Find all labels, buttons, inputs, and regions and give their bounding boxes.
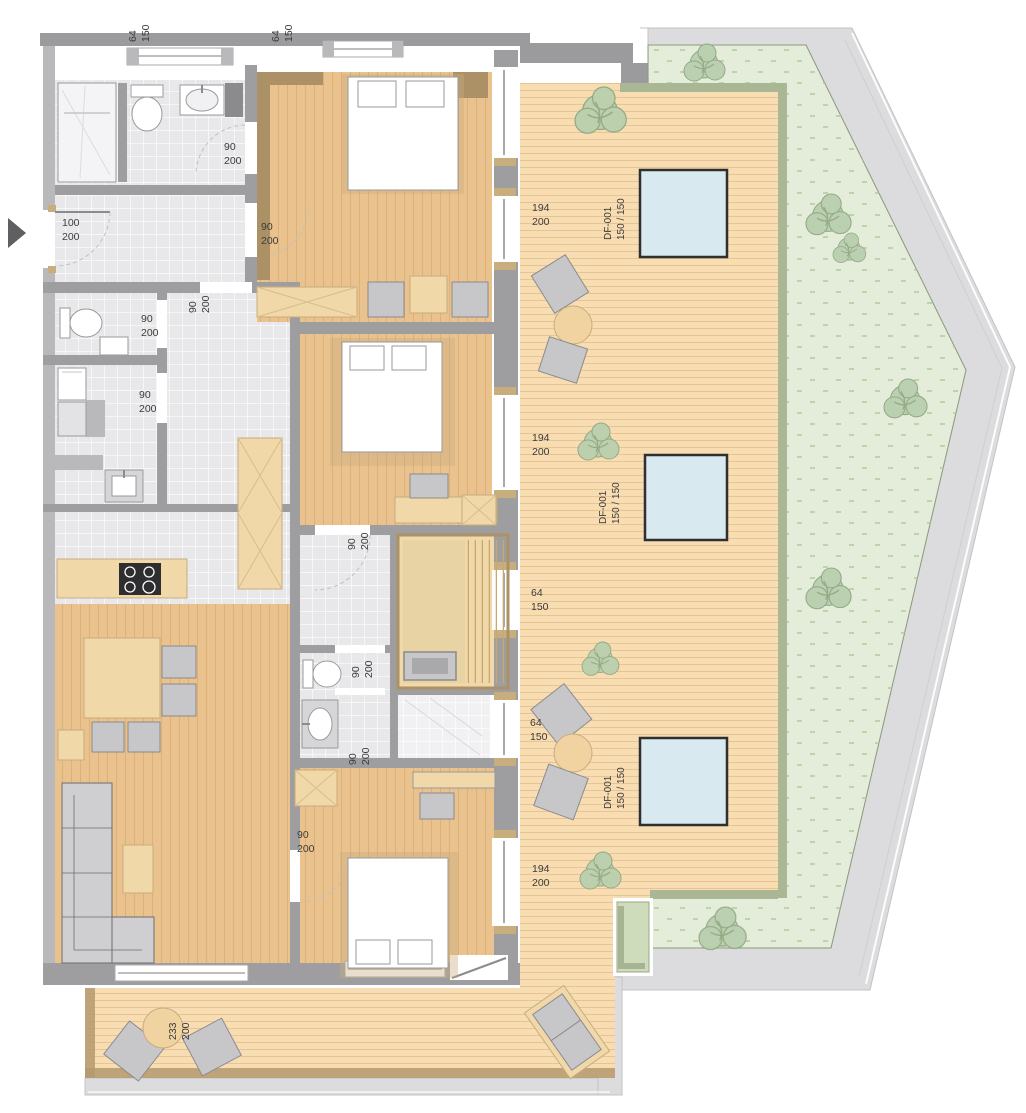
- desk: [413, 772, 495, 788]
- top-window-1: [127, 48, 233, 65]
- svg-text:200: 200: [360, 747, 372, 765]
- chair: [92, 722, 124, 752]
- wall-left: [43, 46, 55, 985]
- sauna: [398, 535, 508, 688]
- svg-text:90: 90: [261, 221, 273, 233]
- dim-top-window-2: 64150: [270, 24, 295, 42]
- floor-hall-2: [300, 535, 390, 645]
- svg-text:200: 200: [141, 327, 159, 339]
- round-table: [554, 734, 592, 772]
- stove: [119, 563, 161, 595]
- planter: [613, 898, 653, 976]
- svg-text:64: 64: [127, 30, 139, 42]
- dryer: [58, 402, 86, 436]
- sauna-slats: [462, 540, 504, 683]
- washer: [58, 368, 86, 400]
- wall-right: [494, 50, 518, 963]
- wardrobe: [257, 287, 357, 317]
- skylight-2: [645, 455, 727, 540]
- svg-text:200: 200: [532, 877, 550, 889]
- svg-text:200: 200: [139, 403, 157, 415]
- shower-room-door: [335, 688, 385, 695]
- toilet: [60, 308, 102, 338]
- svg-text:200: 200: [261, 235, 279, 247]
- svg-text:194: 194: [532, 432, 550, 444]
- svg-text:64: 64: [530, 717, 542, 729]
- svg-text:150 / 150: 150 / 150: [611, 482, 622, 524]
- svg-text:233: 233: [167, 1022, 179, 1040]
- dim-top-window-1: 64150: [127, 24, 152, 42]
- svg-text:150: 150: [283, 24, 295, 42]
- double-bed: [342, 74, 464, 194]
- svg-text:90: 90: [350, 666, 362, 678]
- sink: [100, 337, 128, 355]
- bedroom-1-door: [245, 203, 257, 257]
- side-table: [410, 276, 447, 313]
- utility-door: [157, 373, 167, 423]
- round-table: [554, 306, 592, 344]
- entrance-arrow-icon: [8, 218, 26, 248]
- living-room-window: [115, 965, 248, 981]
- sink: [180, 85, 224, 115]
- corridor-door: [200, 282, 252, 293]
- toilet: [131, 85, 163, 131]
- coffee-table: [123, 845, 153, 893]
- svg-text:200: 200: [200, 295, 212, 313]
- sink: [105, 470, 143, 502]
- balcony-door: [450, 955, 508, 980]
- svg-text:150 / 150: 150 / 150: [616, 198, 627, 240]
- chair: [162, 646, 196, 678]
- terrace-window-2: [492, 692, 518, 766]
- terrace-door-2: [492, 387, 518, 498]
- terrace-door-3: [492, 830, 518, 934]
- svg-text:64: 64: [531, 587, 543, 599]
- chair: [162, 684, 196, 716]
- dim-balcony-door: 233200: [167, 1022, 192, 1040]
- svg-text:100: 100: [62, 217, 80, 229]
- desk-chair: [410, 474, 448, 498]
- svg-text:150: 150: [531, 601, 549, 613]
- chair: [128, 722, 160, 752]
- terrace-window-bedroom-1: [492, 67, 518, 166]
- skylight-3: [640, 738, 727, 825]
- chair: [452, 282, 488, 317]
- wardrobe: [462, 495, 496, 525]
- svg-text:150 / 150: 150 / 150: [616, 767, 627, 809]
- svg-text:90: 90: [346, 538, 358, 550]
- svg-text:200: 200: [297, 843, 315, 855]
- sink: [302, 700, 338, 748]
- svg-text:64: 64: [270, 30, 282, 42]
- floor-plan-drawing: 64150 64150 90200 100200 90200 90200 902…: [0, 0, 1026, 1113]
- svg-text:90: 90: [187, 301, 199, 313]
- svg-text:194: 194: [532, 863, 550, 875]
- svg-text:90: 90: [224, 141, 236, 153]
- bedroom-3-door: [290, 850, 300, 902]
- terrace-door-1: [492, 188, 518, 270]
- svg-text:90: 90: [347, 753, 359, 765]
- svg-text:200: 200: [180, 1022, 192, 1040]
- svg-text:200: 200: [62, 231, 80, 243]
- shower: [58, 83, 116, 182]
- svg-text:90: 90: [139, 389, 151, 401]
- chair: [368, 282, 404, 317]
- svg-text:150: 150: [530, 731, 548, 743]
- svg-text:90: 90: [141, 313, 153, 325]
- svg-text:DF-001: DF-001: [603, 206, 614, 240]
- svg-text:200: 200: [532, 216, 550, 228]
- double-bed: [340, 852, 458, 978]
- svg-text:200: 200: [363, 660, 375, 678]
- top-window-2: [323, 41, 403, 57]
- dining-table: [84, 638, 160, 718]
- bathroom-3-door: [335, 645, 385, 653]
- svg-text:90: 90: [297, 829, 309, 841]
- svg-text:DF-001: DF-001: [598, 490, 609, 524]
- hall-closet: [238, 438, 282, 589]
- floor-entrance-hall: [55, 195, 245, 282]
- wardrobe: [295, 770, 337, 806]
- bathroom-1-door: [245, 122, 257, 174]
- svg-text:200: 200: [224, 155, 242, 167]
- svg-text:200: 200: [532, 446, 550, 458]
- bathroom-2-door: [157, 300, 167, 348]
- entrance-door: [43, 210, 55, 268]
- skylight-1: [640, 170, 727, 257]
- svg-text:150: 150: [140, 24, 152, 42]
- desk-chair: [420, 793, 454, 819]
- svg-text:DF-001: DF-001: [603, 775, 614, 809]
- floor-plan-canvas: 64150 64150 90200 100200 90200 90200 902…: [0, 0, 1026, 1113]
- double-bed: [330, 338, 455, 466]
- cabinet: [58, 730, 84, 760]
- svg-text:194: 194: [532, 202, 550, 214]
- floor-shower-room: [398, 695, 490, 763]
- toilet: [303, 660, 341, 688]
- svg-text:200: 200: [359, 532, 371, 550]
